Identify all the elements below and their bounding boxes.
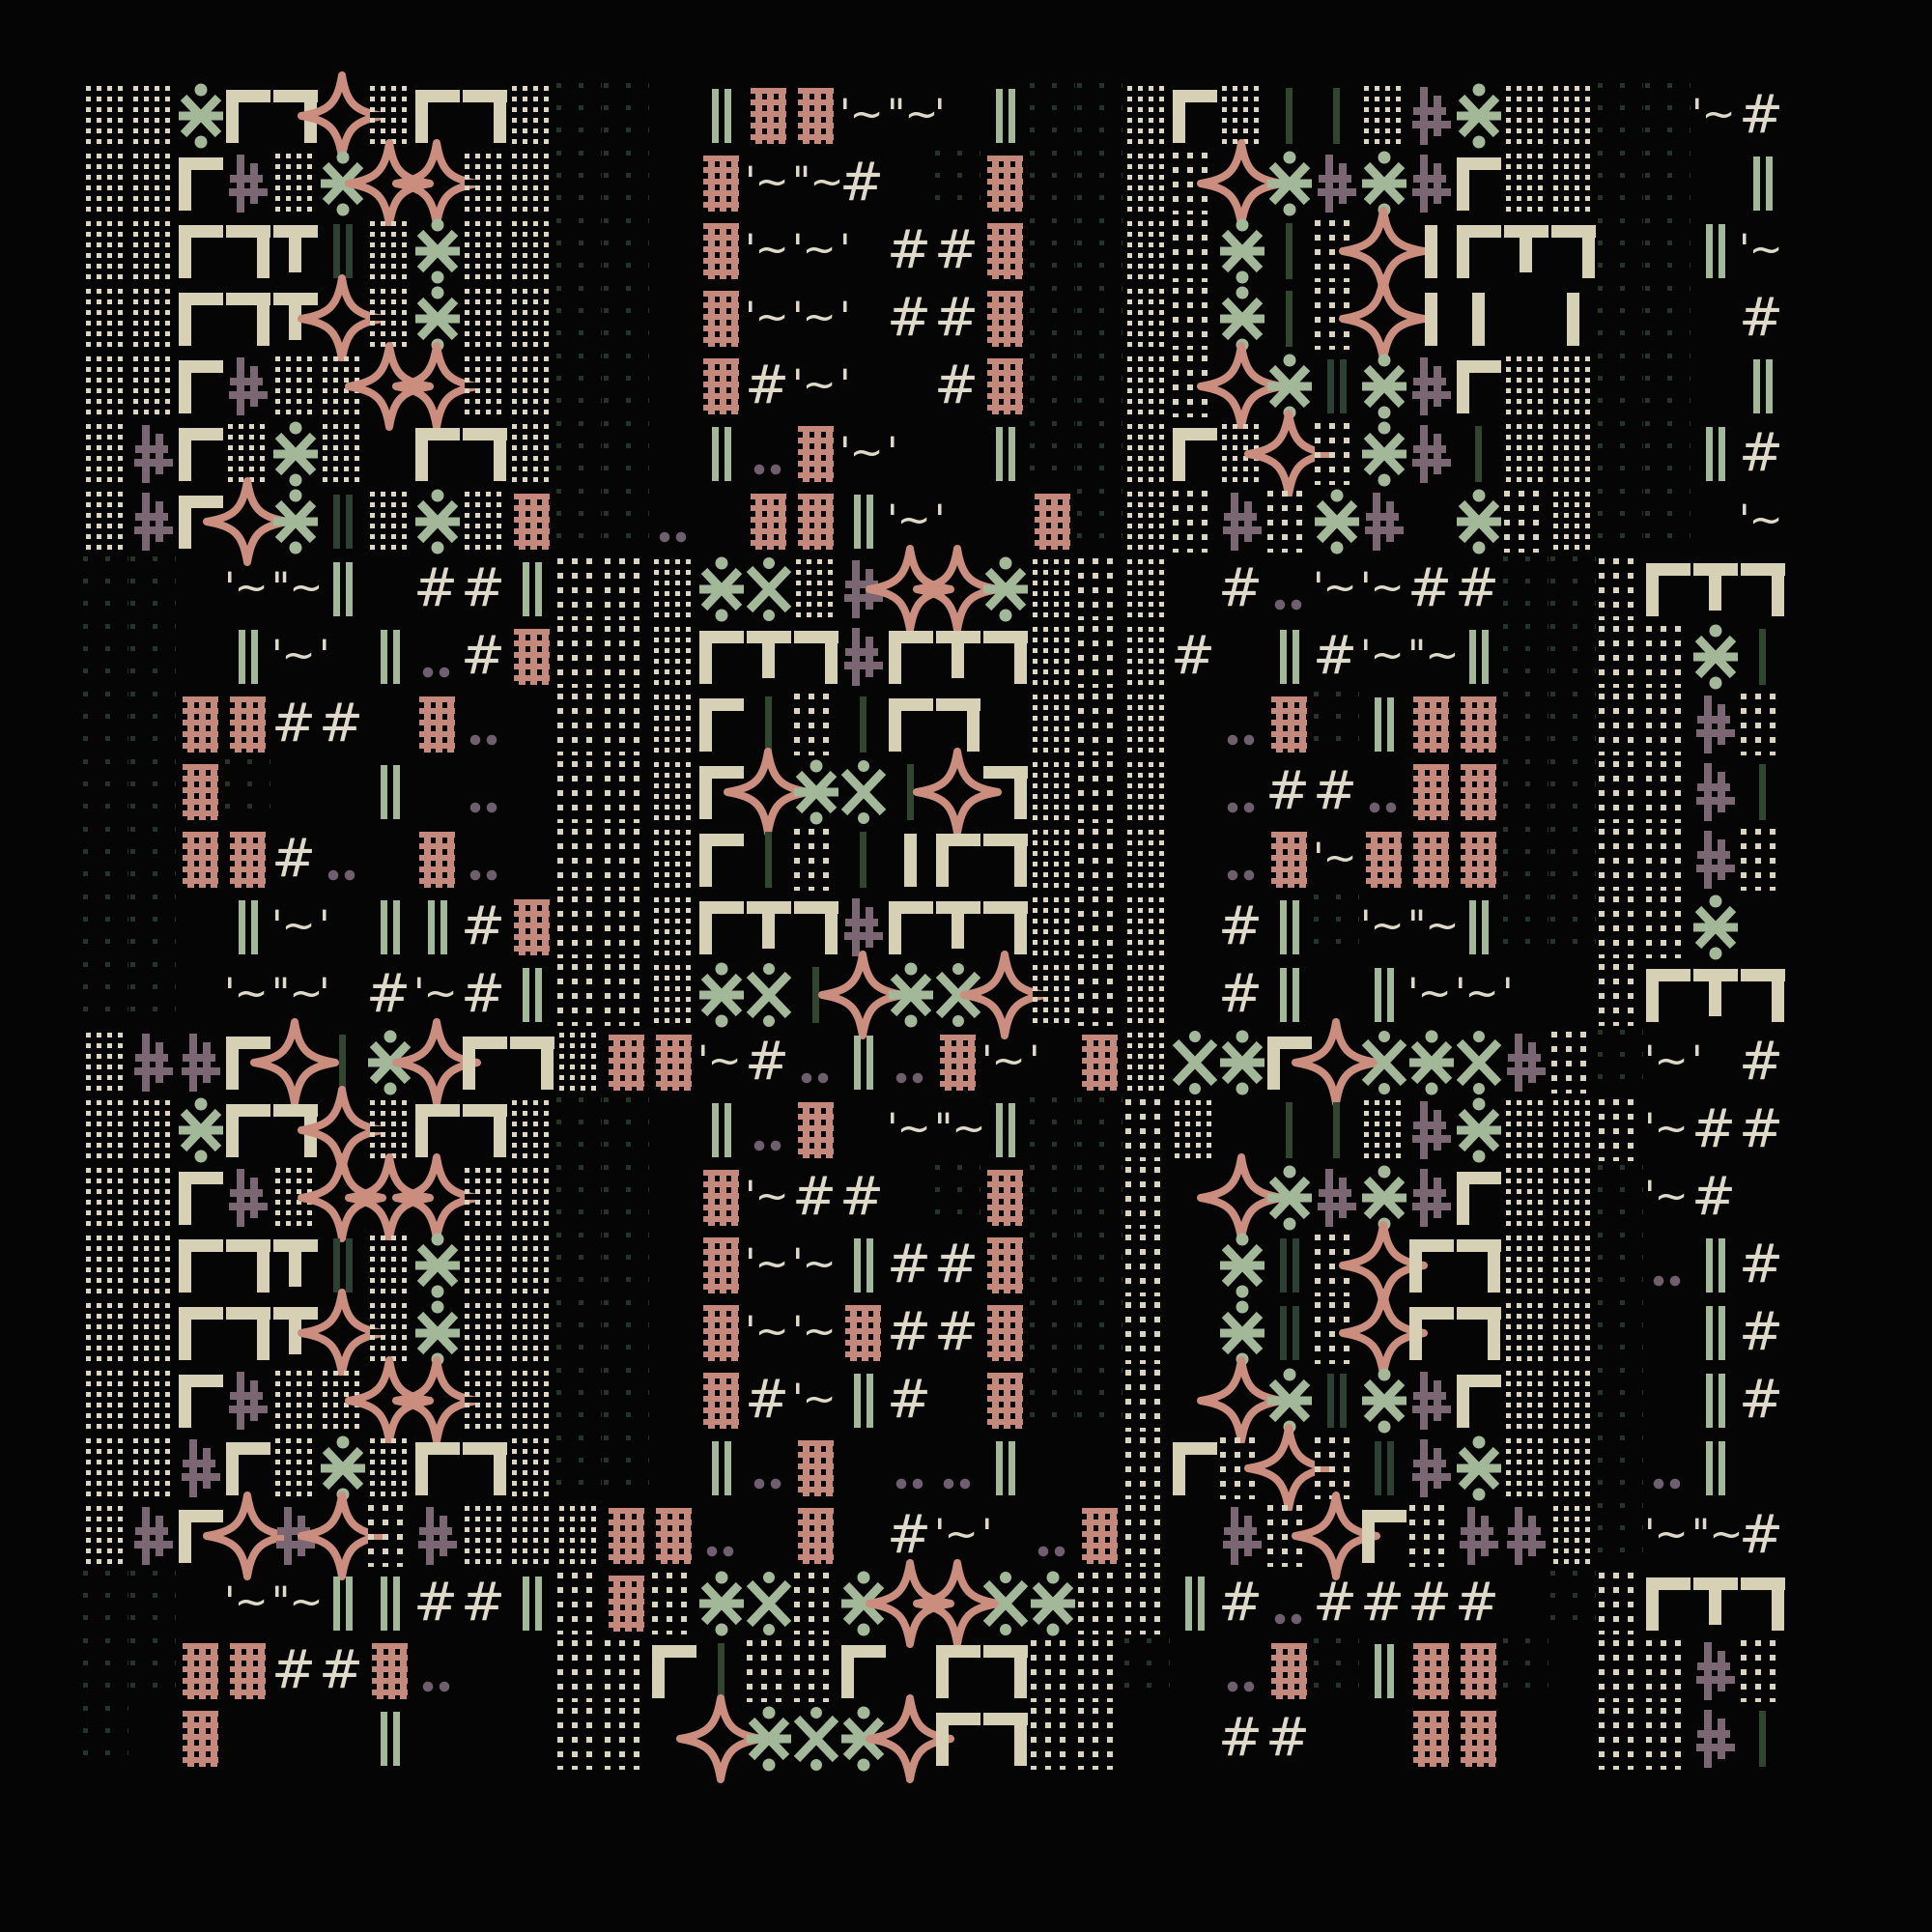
dot-pair-purple-icon xyxy=(745,1435,792,1502)
double-cross-purple-icon xyxy=(224,1367,271,1435)
dot-block-green-dim xyxy=(1502,758,1549,826)
dot-block-cream-dense xyxy=(82,488,129,555)
asterisk-figure-icon xyxy=(271,488,319,555)
dot-block-cream-sparse xyxy=(1076,623,1123,691)
dot-block-cream-dense xyxy=(461,488,508,555)
dot-block-cream-dense xyxy=(82,82,129,150)
hash-glyph: # xyxy=(887,217,934,285)
asterisk-figure-icon xyxy=(413,488,461,555)
four-point-star-icon xyxy=(1218,150,1265,217)
dot-block-cream-sparse xyxy=(1076,961,1123,1029)
dot-block-cream-sparse xyxy=(1644,1637,1691,1705)
dot-pair-purple-icon xyxy=(1360,758,1407,826)
dot-block-green-dim xyxy=(1549,555,1597,623)
dot-block-pink-waffle xyxy=(366,1637,413,1705)
dot-block-cream-sparse xyxy=(555,691,603,758)
dot-block-pink-waffle xyxy=(508,623,555,691)
dot-block-cream-sparse xyxy=(603,826,650,894)
dot-block-green-dim xyxy=(1644,353,1691,420)
dot-block-cream-sparse xyxy=(603,961,650,1029)
single-bar-dim-icon xyxy=(1313,82,1360,150)
single-bar-dim-icon xyxy=(839,826,887,894)
dot-block-cream-sparse xyxy=(1313,420,1360,488)
asterisk-figure-icon xyxy=(1218,1029,1265,1096)
hash-glyph: # xyxy=(1691,1164,1739,1232)
x-asterisk-icon xyxy=(981,1570,1029,1637)
dot-block-cream-dense xyxy=(1549,488,1597,555)
dot-block-cream-sparse xyxy=(1739,826,1786,894)
double-bar-green-icon xyxy=(1360,691,1407,758)
dot-block-cream-dense xyxy=(1123,758,1171,826)
dot-block-cream-dense xyxy=(1549,1502,1597,1570)
corner-bracket-left-icon xyxy=(177,1164,224,1232)
dot-block-cream-sparse xyxy=(555,1637,603,1705)
corner-bracket-right-icon xyxy=(981,1705,1029,1773)
dot-block-green-dim xyxy=(1502,826,1549,894)
tick-tilde-glyph: '~ xyxy=(745,1164,792,1232)
double-cross-purple-icon xyxy=(129,488,177,555)
dot-block-cream-sparse xyxy=(792,1637,839,1705)
corner-bracket-left-icon xyxy=(697,623,745,691)
bar-leg-icon xyxy=(1549,285,1597,353)
tick-tilde-glyph: '~ xyxy=(1455,961,1502,1029)
four-point-star-icon xyxy=(745,758,792,826)
dot-block-green-dim xyxy=(1502,691,1549,758)
dot-block-green-dim xyxy=(129,555,177,623)
asterisk-figure-icon xyxy=(1029,1570,1076,1637)
corner-bracket-left-icon xyxy=(1455,217,1502,285)
corner-bracket-left-icon xyxy=(1171,1435,1218,1502)
double-bar-green-icon xyxy=(508,1570,555,1637)
hash-glyph: # xyxy=(1739,1299,1786,1367)
hash-glyph: # xyxy=(1360,1570,1407,1637)
dot-block-cream-dense xyxy=(1123,353,1171,420)
dot-block-pink-waffle xyxy=(981,150,1029,217)
four-point-star-icon xyxy=(934,555,981,623)
dot-block-pink-waffle xyxy=(981,285,1029,353)
dot-block-cream-sparse xyxy=(1597,894,1644,961)
dot-block-green-dim xyxy=(603,420,650,488)
dot-pair-purple-icon xyxy=(413,623,461,691)
dot-pair-purple-icon xyxy=(1218,758,1265,826)
dot-block-cream-dense xyxy=(1502,1299,1549,1367)
double-bar-green-icon xyxy=(1691,217,1739,285)
double-bar-green-icon xyxy=(366,758,413,826)
dot-block-cream-dense xyxy=(82,420,129,488)
double-cross-purple-icon xyxy=(224,1164,271,1232)
four-point-star-icon xyxy=(981,961,1029,1029)
corner-bracket-right-icon xyxy=(981,623,1029,691)
corner-bracket-left-icon xyxy=(177,1367,224,1435)
double-bar-dim-icon xyxy=(319,488,366,555)
dot-block-green-dim xyxy=(555,420,603,488)
dot-block-pink-waffle xyxy=(792,1435,839,1502)
dot-block-cream-sparse xyxy=(1123,1570,1171,1637)
quote-tilde-glyph: "~ xyxy=(1407,623,1455,691)
corner-bracket-right-icon xyxy=(508,1029,555,1096)
dot-block-green-dim xyxy=(1597,1164,1644,1232)
tick-glyph: ' xyxy=(1502,961,1549,1029)
corner-bracket-right-icon xyxy=(461,1435,508,1502)
tee-bracket-icon xyxy=(1691,961,1739,1029)
dot-block-cream-dense xyxy=(792,555,839,623)
dot-block-green-dim xyxy=(1029,1367,1076,1435)
hash-glyph: # xyxy=(887,285,934,353)
dot-block-cream-dense xyxy=(555,1029,603,1096)
dot-block-green-dim xyxy=(1029,1299,1076,1367)
double-bar-green-icon xyxy=(1739,353,1786,420)
four-point-star-icon xyxy=(224,488,271,555)
dot-block-cream-dense xyxy=(82,150,129,217)
dot-block-cream-dense xyxy=(1502,353,1549,420)
dot-block-cream-dense xyxy=(1123,961,1171,1029)
dot-block-cream-sparse xyxy=(1076,555,1123,623)
hash-glyph: # xyxy=(461,555,508,623)
hash-glyph: # xyxy=(271,826,319,894)
dot-block-pink-waffle xyxy=(1455,826,1502,894)
dot-block-cream-dense xyxy=(650,691,697,758)
four-point-star-icon xyxy=(413,1029,461,1096)
dot-block-cream-dense xyxy=(461,1502,508,1570)
double-bar-green-icon xyxy=(1691,1299,1739,1367)
double-bar-green-icon xyxy=(366,623,413,691)
dot-block-pink-waffle xyxy=(650,1029,697,1096)
dot-block-pink-waffle xyxy=(1455,1705,1502,1773)
dot-block-cream-sparse xyxy=(1076,826,1123,894)
hash-glyph: # xyxy=(934,1232,981,1299)
double-bar-green-icon xyxy=(1171,1570,1218,1637)
x-asterisk-icon xyxy=(745,961,792,1029)
four-point-star-icon xyxy=(1313,1029,1360,1096)
double-bar-green-icon xyxy=(697,1096,745,1164)
dot-block-cream-dense xyxy=(1123,691,1171,758)
dot-pair-purple-icon xyxy=(319,826,366,894)
dot-block-green-dim xyxy=(603,150,650,217)
dot-block-cream-dense xyxy=(1502,420,1549,488)
dot-block-cream-dense xyxy=(508,217,555,285)
corner-bracket-left-icon xyxy=(177,285,224,353)
tick-tilde-glyph: '~ xyxy=(271,623,319,691)
corner-bracket-left-icon xyxy=(934,826,981,894)
dot-block-cream-dense xyxy=(82,217,129,285)
tick-glyph: ' xyxy=(319,894,366,961)
corner-bracket-right-icon xyxy=(792,623,839,691)
dot-block-green-dim xyxy=(1597,285,1644,353)
dot-block-green-dim xyxy=(82,961,129,1029)
dot-block-cream-sparse xyxy=(1123,1502,1171,1570)
hash-glyph: # xyxy=(1218,1570,1265,1637)
dot-block-pink-waffle xyxy=(1076,1029,1123,1096)
dot-pair-purple-icon xyxy=(1218,826,1265,894)
double-bar-dim-icon xyxy=(1265,1232,1313,1299)
dot-block-pink-waffle xyxy=(697,1299,745,1367)
corner-bracket-left-icon xyxy=(1455,353,1502,420)
dot-block-green-dim xyxy=(1076,1096,1123,1164)
dot-block-cream-dense xyxy=(82,285,129,353)
dot-block-cream-sparse xyxy=(603,555,650,623)
tick-tilde-glyph: '~ xyxy=(745,217,792,285)
asterisk-figure-icon xyxy=(1691,894,1739,961)
hash-glyph: # xyxy=(1218,555,1265,623)
tick-tilde-glyph: '~ xyxy=(1407,961,1455,1029)
dot-block-green-dim xyxy=(1076,82,1123,150)
dot-block-green-dim xyxy=(1549,1570,1597,1637)
double-bar-green-icon xyxy=(839,1029,887,1096)
dot-block-green-dim xyxy=(82,1637,129,1705)
corner-bracket-left-icon xyxy=(413,420,461,488)
dot-block-green-dim xyxy=(603,353,650,420)
dot-block-cream-dense xyxy=(1029,758,1076,826)
asterisk-figure-icon xyxy=(1360,420,1407,488)
double-cross-purple-icon xyxy=(1691,1705,1739,1773)
tick-tilde-glyph: '~ xyxy=(745,150,792,217)
dot-pair-purple-icon xyxy=(697,1502,745,1570)
x-asterisk-icon xyxy=(745,555,792,623)
dot-block-pink-waffle xyxy=(839,1299,887,1367)
dot-block-green-dim xyxy=(1597,420,1644,488)
dot-block-green-dim xyxy=(1502,555,1549,623)
dot-block-pink-waffle xyxy=(697,1367,745,1435)
dot-block-green-dim xyxy=(129,623,177,691)
asterisk-figure-icon xyxy=(697,1570,745,1637)
dot-block-green-dim xyxy=(603,1232,650,1299)
double-bar-green-icon xyxy=(319,1570,366,1637)
hash-glyph: # xyxy=(1218,961,1265,1029)
hash-glyph: # xyxy=(461,1570,508,1637)
tick-tilde-glyph: '~ xyxy=(839,420,887,488)
bar-leg-icon xyxy=(1407,285,1455,353)
dot-block-cream-dense xyxy=(1502,1435,1549,1502)
four-point-star-icon xyxy=(413,1164,461,1232)
dot-block-cream-sparse xyxy=(1597,1637,1644,1705)
hash-glyph: # xyxy=(1455,555,1502,623)
dot-block-cream-dense xyxy=(129,285,177,353)
tick-glyph: ' xyxy=(1691,1029,1739,1096)
corner-bracket-left-icon xyxy=(461,1029,508,1096)
dot-block-cream-dense xyxy=(1549,82,1597,150)
dot-block-cream-sparse xyxy=(555,623,603,691)
dot-block-cream-dense xyxy=(1029,961,1076,1029)
tick-tilde-glyph: '~ xyxy=(271,894,319,961)
dot-block-green-dim xyxy=(1644,420,1691,488)
tee-bracket-icon xyxy=(934,623,981,691)
hash-glyph: # xyxy=(1407,555,1455,623)
dot-block-green-dim xyxy=(1597,488,1644,555)
double-bar-green-icon xyxy=(413,894,461,961)
dot-block-pink-waffle xyxy=(650,1502,697,1570)
tick-tilde-glyph: '~ xyxy=(224,555,271,623)
dot-block-cream-dense xyxy=(650,623,697,691)
dot-block-pink-waffle xyxy=(1407,691,1455,758)
dot-block-cream-dense xyxy=(461,217,508,285)
dot-block-cream-dense xyxy=(508,1367,555,1435)
dot-block-green-dim xyxy=(1597,1435,1644,1502)
dot-block-green-dim xyxy=(1029,1096,1076,1164)
four-point-star-icon xyxy=(887,1705,934,1773)
dot-block-cream-sparse xyxy=(792,826,839,894)
double-cross-purple-icon xyxy=(1218,488,1265,555)
dot-block-green-dim xyxy=(1644,82,1691,150)
double-cross-purple-icon xyxy=(1360,488,1407,555)
double-bar-green-icon xyxy=(366,894,413,961)
dot-block-green-dim xyxy=(555,1232,603,1299)
dot-block-cream-dense xyxy=(129,1435,177,1502)
dot-block-cream-dense xyxy=(650,961,697,1029)
dot-block-pink-waffle xyxy=(745,82,792,150)
dot-block-green-dim xyxy=(1076,1232,1123,1299)
dot-block-cream-dense xyxy=(1549,420,1597,488)
asterisk-figure-icon xyxy=(413,1232,461,1299)
dot-block-cream-dense xyxy=(1029,826,1076,894)
dot-block-pink-waffle xyxy=(697,1232,745,1299)
double-bar-green-icon xyxy=(839,1232,887,1299)
dot-block-cream-dense xyxy=(129,1232,177,1299)
dot-block-cream-sparse xyxy=(1644,758,1691,826)
dot-block-cream-sparse xyxy=(1123,1232,1171,1299)
dot-block-cream-sparse xyxy=(1549,1029,1597,1096)
hash-glyph: # xyxy=(792,1164,839,1232)
corner-bracket-left-icon xyxy=(1455,1367,1502,1435)
dot-block-cream-sparse xyxy=(1123,1435,1171,1502)
dot-block-cream-sparse xyxy=(1123,1096,1171,1164)
tick-tilde-glyph: '~ xyxy=(697,1029,745,1096)
hash-glyph: # xyxy=(1265,758,1313,826)
dot-block-cream-dense xyxy=(1549,1435,1597,1502)
tick-glyph: ' xyxy=(934,82,981,150)
dot-pair-purple-icon xyxy=(461,826,508,894)
corner-bracket-right-icon xyxy=(224,285,271,353)
dot-block-green-dim xyxy=(603,285,650,353)
dot-block-green-dim xyxy=(1029,1164,1076,1232)
double-bar-green-icon xyxy=(1691,1367,1739,1435)
bar-leg-icon xyxy=(1455,285,1502,353)
dot-block-cream-dense xyxy=(650,894,697,961)
hash-glyph: # xyxy=(1739,1029,1786,1096)
dot-block-cream-sparse xyxy=(555,894,603,961)
corner-bracket-left-icon xyxy=(224,82,271,150)
four-point-star-icon xyxy=(1265,420,1313,488)
dot-block-pink-waffle xyxy=(792,1502,839,1570)
tick-tilde-glyph: '~ xyxy=(792,1367,839,1435)
dot-pair-purple-icon xyxy=(1265,555,1313,623)
dot-block-pink-waffle xyxy=(981,1232,1029,1299)
double-cross-purple-icon xyxy=(177,1029,224,1096)
tee-bracket-icon xyxy=(745,894,792,961)
dot-block-pink-waffle xyxy=(981,353,1029,420)
dot-pair-purple-icon xyxy=(934,1435,981,1502)
dot-block-cream-dense xyxy=(1123,894,1171,961)
double-bar-green-icon xyxy=(508,555,555,623)
tick-glyph: ' xyxy=(839,285,887,353)
dot-block-cream-sparse xyxy=(1644,894,1691,961)
dot-block-green-dim xyxy=(1076,420,1123,488)
corner-bracket-right-icon xyxy=(1739,555,1786,623)
dot-block-green-dim xyxy=(82,826,129,894)
double-bar-green-icon xyxy=(697,82,745,150)
dot-block-pink-waffle xyxy=(792,82,839,150)
hash-glyph: # xyxy=(745,1367,792,1435)
dot-block-cream-dense xyxy=(508,1502,555,1570)
dot-block-cream-dense xyxy=(82,1232,129,1299)
dot-pair-purple-icon xyxy=(1265,1570,1313,1637)
asterisk-figure-icon xyxy=(413,217,461,285)
dot-block-green-dim xyxy=(1597,1299,1644,1367)
dot-block-cream-dense xyxy=(1502,1096,1549,1164)
dot-block-pink-waffle xyxy=(697,1164,745,1232)
hash-glyph: # xyxy=(839,1164,887,1232)
dot-block-green-dim xyxy=(603,1164,650,1232)
tick-glyph: ' xyxy=(839,353,887,420)
dot-pair-purple-icon xyxy=(413,1637,461,1705)
dot-block-pink-waffle xyxy=(1265,691,1313,758)
dot-block-cream-sparse xyxy=(555,961,603,1029)
dot-block-green-dim xyxy=(1644,150,1691,217)
dot-block-green-dim xyxy=(129,758,177,826)
tick-tilde-glyph: '~ xyxy=(887,1096,934,1164)
dot-block-green-dim xyxy=(1076,217,1123,285)
tee-bracket-icon xyxy=(745,623,792,691)
dot-block-green-dim xyxy=(1644,285,1691,353)
dot-block-green-dim xyxy=(555,150,603,217)
dot-block-green-dim xyxy=(555,1096,603,1164)
tick-tilde-glyph: '~ xyxy=(1313,826,1360,894)
dot-block-green-dim xyxy=(1076,1367,1123,1435)
dot-pair-purple-icon xyxy=(650,488,697,555)
hash-glyph: # xyxy=(745,353,792,420)
tick-tilde-glyph: '~ xyxy=(792,285,839,353)
double-bar-green-icon xyxy=(1691,1232,1739,1299)
dot-block-cream-sparse xyxy=(1076,1705,1123,1773)
double-bar-green-icon xyxy=(1455,894,1502,961)
dot-block-pink-waffle xyxy=(177,691,224,758)
bar-leg-icon xyxy=(887,826,934,894)
dot-block-pink-waffle xyxy=(177,758,224,826)
dot-block-pink-waffle xyxy=(1407,1637,1455,1705)
dot-block-green-dim xyxy=(934,150,981,217)
double-cross-purple-icon xyxy=(1407,82,1455,150)
dot-block-pink-waffle xyxy=(1265,826,1313,894)
hash-glyph: # xyxy=(1739,285,1786,353)
dot-block-green-dim xyxy=(555,82,603,150)
quote-tilde-glyph: "~ xyxy=(271,555,319,623)
dot-block-cream-dense xyxy=(1549,1164,1597,1232)
dot-block-cream-dense xyxy=(508,1232,555,1299)
dot-block-pink-waffle xyxy=(1029,488,1076,555)
dot-block-pink-waffle xyxy=(697,285,745,353)
hash-glyph: # xyxy=(1313,758,1360,826)
dot-block-green-dim xyxy=(82,758,129,826)
dot-block-green-dim xyxy=(1502,623,1549,691)
asterisk-figure-icon xyxy=(1455,82,1502,150)
double-bar-green-icon xyxy=(1265,894,1313,961)
dot-block-cream-sparse xyxy=(1123,1299,1171,1367)
dot-block-green-dim xyxy=(1123,1637,1171,1705)
corner-bracket-left-icon xyxy=(1455,1164,1502,1232)
dot-block-pink-waffle xyxy=(981,1299,1029,1367)
dot-block-green-dim xyxy=(1644,217,1691,285)
corner-bracket-left-icon xyxy=(224,1096,271,1164)
hash-glyph: # xyxy=(887,1299,934,1367)
tick-glyph: ' xyxy=(887,420,934,488)
corner-bracket-right-icon xyxy=(1739,961,1786,1029)
tick-tilde-glyph: '~ xyxy=(1739,217,1786,285)
tee-bracket-icon xyxy=(1691,555,1739,623)
dot-block-cream-dense xyxy=(461,1367,508,1435)
dot-block-green-dim xyxy=(1076,285,1123,353)
dot-block-green-dim xyxy=(1549,758,1597,826)
dot-block-cream-dense xyxy=(82,1096,129,1164)
dot-block-green-dim xyxy=(129,826,177,894)
